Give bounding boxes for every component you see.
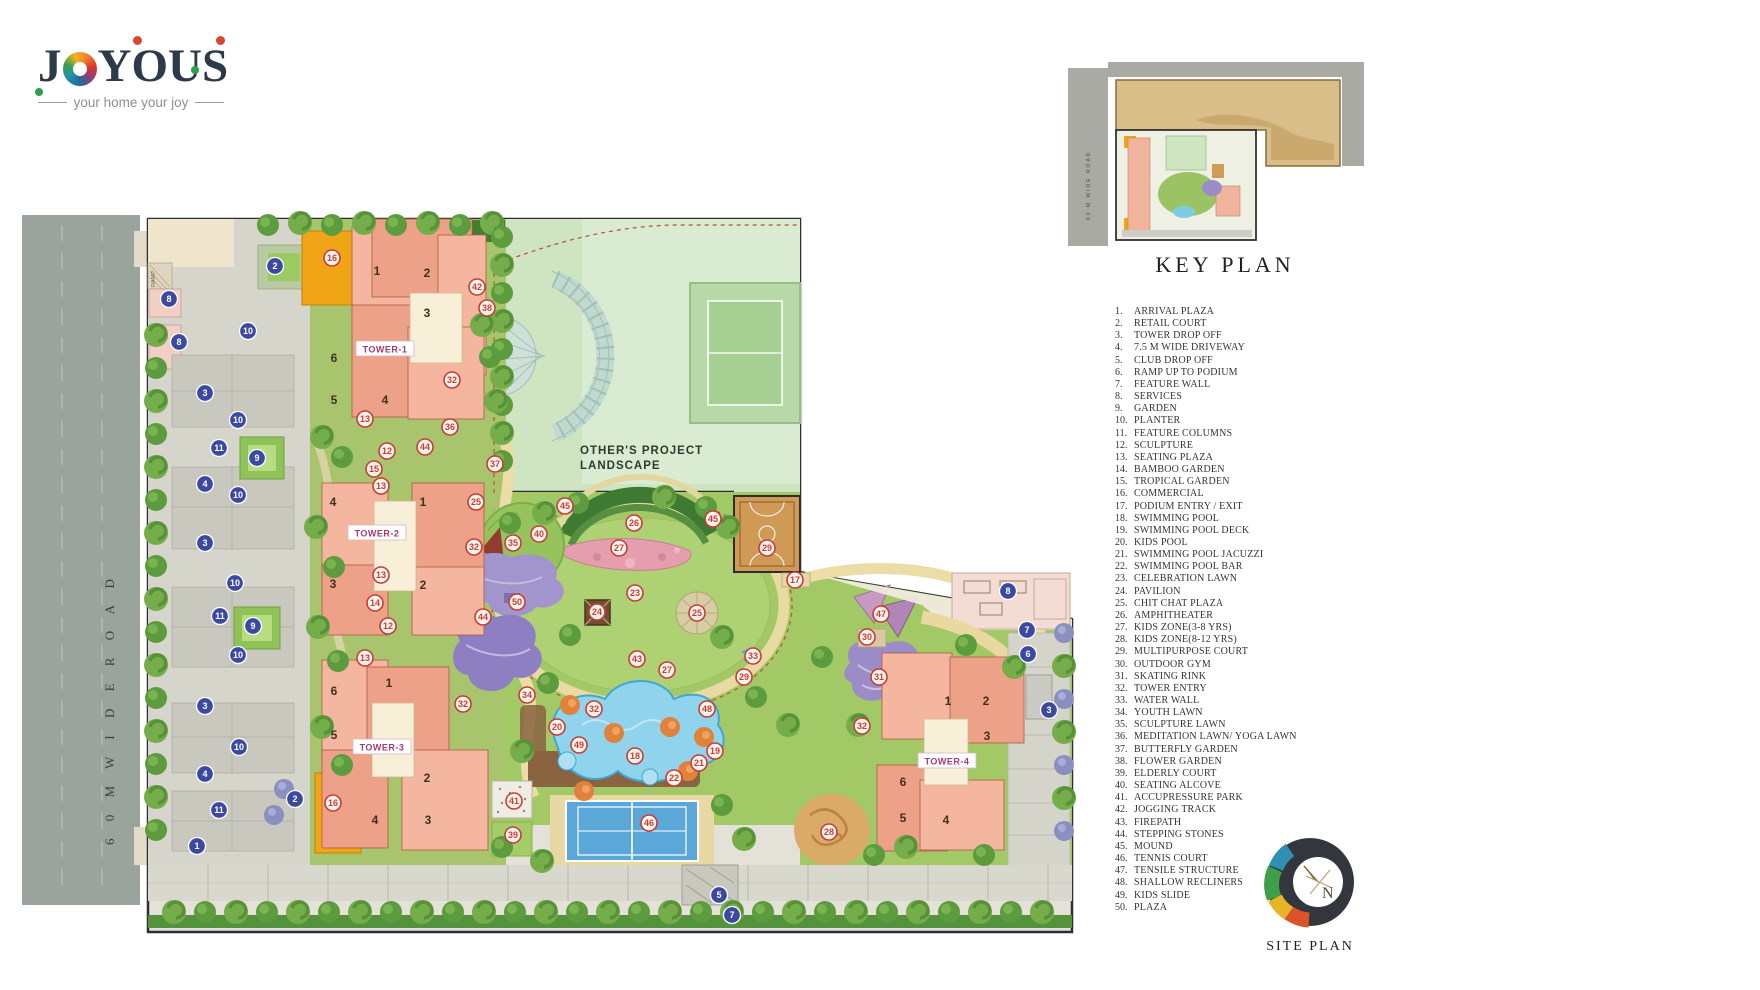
plan-marker-red: 19	[707, 743, 723, 759]
plan-marker-red: 42	[469, 279, 485, 295]
unit-number: 4	[330, 495, 337, 509]
legend-item: 31.SKATING RINK	[1115, 671, 1335, 683]
legend-item: 24.PAVILION	[1115, 586, 1335, 598]
legend-item: 43.FIREPATH	[1115, 817, 1335, 829]
brand-letter-j: J	[38, 40, 62, 92]
plan-marker-red: 32	[444, 372, 460, 388]
svg-text:7: 7	[729, 910, 734, 920]
svg-text:19: 19	[710, 746, 720, 756]
legend-item: 36.MEDITATION LAWN/ YOGA LAWN	[1115, 731, 1335, 743]
svg-text:10: 10	[233, 650, 243, 660]
svg-text:27: 27	[662, 665, 672, 675]
svg-text:11: 11	[214, 805, 224, 815]
plan-marker-red: 32	[466, 539, 482, 555]
plan-marker-blue: 9	[249, 450, 266, 467]
unit-number: 5	[331, 728, 338, 742]
plan-marker-red: 24	[589, 604, 605, 620]
brand-dot-red-1	[133, 36, 142, 45]
plan-marker-blue: 2	[267, 258, 284, 275]
legend-item: 39.ELDERLY COURT	[1115, 768, 1335, 780]
svg-text:45: 45	[560, 501, 570, 511]
legend-item: 38.FLOWER GARDEN	[1115, 756, 1335, 768]
svg-text:5: 5	[716, 890, 721, 900]
svg-text:21: 21	[694, 758, 704, 768]
svg-text:8: 8	[1005, 586, 1010, 596]
others-project-label-1: OTHER'S PROJECT	[580, 445, 703, 457]
legend-item: 34.YOUTH LAWN	[1115, 707, 1335, 719]
plan-marker-red: 29	[736, 669, 752, 685]
plan-marker-red: 29	[759, 540, 775, 556]
plan-marker-blue: 3	[197, 385, 214, 402]
unit-number: 2	[424, 771, 431, 785]
legend-item: 23.CELEBRATION LAWN	[1115, 573, 1335, 585]
plan-marker-blue: 11	[211, 802, 228, 819]
plan-marker-red: 44	[475, 609, 491, 625]
tower-1-footprint	[352, 219, 486, 419]
plan-marker-blue: 4	[197, 476, 214, 493]
svg-text:29: 29	[762, 543, 772, 553]
plan-marker-red: 33	[745, 648, 761, 664]
svg-text:40: 40	[534, 529, 544, 539]
keyplan-road-label: 60 M WIDE ROAD	[1086, 151, 1092, 220]
unit-number: 3	[330, 577, 337, 591]
svg-text:3: 3	[202, 388, 207, 398]
unit-number: 6	[331, 684, 338, 698]
svg-text:29: 29	[739, 672, 749, 682]
plan-marker-red: 27	[659, 662, 675, 678]
plan-marker-blue: 11	[211, 440, 228, 457]
svg-text:42: 42	[472, 282, 482, 292]
driveway-strip: RAMP	[148, 219, 310, 867]
unit-number: 2	[420, 578, 427, 592]
legend-item: 18.SWIMMING POOL	[1115, 513, 1335, 525]
road-60m-label: 6 0 M W I D E R O A D	[102, 572, 117, 845]
svg-text:TOWER-3: TOWER-3	[360, 743, 405, 753]
plan-marker-blue: 6	[1020, 646, 1037, 663]
svg-text:13: 13	[360, 653, 370, 663]
legend-item: 35.SCULPTURE LAWN	[1115, 719, 1335, 731]
site-plan-label: SITE PLAN	[1260, 939, 1360, 955]
plan-marker-red: 16	[325, 795, 341, 811]
svg-text:4: 4	[202, 769, 207, 779]
legend-item: 16.COMMERCIAL	[1115, 488, 1335, 500]
svg-text:TOWER-2: TOWER-2	[355, 529, 400, 539]
unit-number: 4	[943, 813, 950, 827]
svg-text:32: 32	[447, 375, 457, 385]
plan-marker-blue: 3	[1041, 702, 1058, 719]
plan-marker-red: 21	[691, 755, 707, 771]
legend-item: 17.PODIUM ENTRY / EXIT	[1115, 501, 1335, 513]
legend-item: 32.TOWER ENTRY	[1115, 683, 1335, 695]
svg-text:1: 1	[194, 841, 199, 851]
svg-text:32: 32	[469, 542, 479, 552]
legend-item: 15.TROPICAL GARDEN	[1115, 476, 1335, 488]
svg-text:2: 2	[292, 794, 297, 804]
unit-number: 1	[945, 694, 952, 708]
legend-item: 12.SCULPTURE	[1115, 440, 1335, 452]
svg-text:34: 34	[522, 690, 532, 700]
road-60m: 6 0 M W I D E R O A D	[22, 215, 150, 905]
svg-text:43: 43	[632, 654, 642, 664]
plan-marker-blue: 7	[1019, 622, 1036, 639]
svg-text:12: 12	[382, 446, 392, 456]
keyplan-towers-strip	[1128, 138, 1150, 234]
plan-marker-blue: 7	[724, 907, 741, 924]
tower-label: TOWER-3	[353, 739, 411, 754]
commercial-block-top	[302, 231, 358, 305]
svg-text:10: 10	[230, 578, 240, 588]
unit-number: 5	[331, 393, 338, 407]
svg-text:14: 14	[370, 598, 380, 608]
unit-number: 1	[386, 676, 393, 690]
plan-marker-blue: 11	[212, 608, 229, 625]
plan-marker-red: 22	[666, 770, 682, 786]
unit-number: 4	[372, 813, 379, 827]
svg-text:8: 8	[166, 294, 171, 304]
tower-label: TOWER-2	[348, 525, 406, 540]
unit-number: 3	[424, 306, 431, 320]
compass-n-letter: N	[1322, 885, 1334, 902]
brand-logo: JYOUS your home your joy	[38, 40, 238, 110]
plan-marker-blue: 3	[197, 698, 214, 715]
svg-text:20: 20	[552, 722, 562, 732]
plan-marker-red: 32	[854, 718, 870, 734]
svg-text:8: 8	[176, 337, 181, 347]
svg-text:11: 11	[214, 443, 224, 453]
unit-number: 5	[900, 811, 907, 825]
legend-item: 20.KIDS POOL	[1115, 537, 1335, 549]
svg-text:12: 12	[383, 621, 393, 631]
plan-marker-blue: 8	[1000, 583, 1017, 600]
legend-item: 8.SERVICES	[1115, 391, 1335, 403]
plan-marker-red: 13	[357, 411, 373, 427]
svg-text:3: 3	[202, 701, 207, 711]
svg-text:32: 32	[458, 699, 468, 709]
legend-item: 30.OUTDOOR GYM	[1115, 659, 1335, 671]
svg-text:41: 41	[509, 796, 519, 806]
plan-marker-red: 44	[417, 439, 433, 455]
legend-item: 7.FEATURE WALL	[1115, 379, 1335, 391]
plan-marker-red: 25	[689, 605, 705, 621]
plan-marker-blue: 3	[197, 535, 214, 552]
plan-marker-blue: 5	[711, 887, 728, 904]
keyplan-court	[1212, 164, 1224, 178]
brand-tagline-row: your home your joy	[38, 95, 224, 110]
plan-marker-red: 13	[373, 478, 389, 494]
plan-marker-red: 15	[366, 461, 382, 477]
plan-marker-blue: 9	[245, 618, 262, 635]
svg-text:25: 25	[692, 608, 702, 618]
plan-marker-blue: 2	[287, 791, 304, 808]
tree-border-bottom	[162, 900, 1054, 924]
unit-number: 1	[420, 495, 427, 509]
legend-item: 29.MULTIPURPOSE COURT	[1115, 646, 1335, 658]
svg-text:26: 26	[629, 518, 639, 528]
svg-text:2: 2	[272, 261, 277, 271]
svg-text:48: 48	[702, 704, 712, 714]
svg-text:10: 10	[234, 742, 244, 752]
svg-text:16: 16	[328, 798, 338, 808]
plan-marker-red: 26	[626, 515, 642, 531]
brand-letters-rest: YOUS	[98, 40, 229, 92]
key-plan-map: 60 M WIDE ROAD	[1066, 60, 1368, 250]
plan-marker-red: 12	[379, 443, 395, 459]
svg-text:49: 49	[574, 740, 584, 750]
tagline-dash-right	[195, 102, 224, 103]
svg-text:18: 18	[630, 751, 640, 761]
svg-text:13: 13	[360, 414, 370, 424]
svg-text:44: 44	[420, 442, 430, 452]
svg-text:13: 13	[376, 570, 386, 580]
keyplan-promenade	[1122, 230, 1252, 237]
plan-marker-blue: 10	[230, 412, 247, 429]
plan-marker-red: 18	[627, 748, 643, 764]
brand-dot-red-2	[216, 36, 225, 45]
unit-number: 6	[331, 351, 338, 365]
plan-marker-blue: 8	[161, 291, 178, 308]
others-project-landscape: OTHER'S PROJECT LANDSCAPE	[494, 219, 800, 492]
plan-marker-blue: 4	[197, 766, 214, 783]
swirl-orange	[1289, 913, 1309, 920]
svg-text:32: 32	[589, 704, 599, 714]
legend-item: 41.ACCUPRESSURE PARK	[1115, 792, 1335, 804]
svg-text:32: 32	[857, 721, 867, 731]
keyplan-rink	[1202, 180, 1222, 196]
plan-marker-blue: 8	[171, 334, 188, 351]
plan-marker-red: 48	[699, 701, 715, 717]
keyplan-road-right	[1342, 62, 1364, 166]
plan-marker-red: 39	[505, 827, 521, 843]
plan-marker-red: 38	[479, 300, 495, 316]
unit-number: 3	[984, 729, 991, 743]
legend-item: 26.AMPHITHEATER	[1115, 610, 1335, 622]
unit-number: 3	[425, 813, 432, 827]
svg-text:31: 31	[874, 672, 884, 682]
legend-item: 37.BUTTERFLY GARDEN	[1115, 744, 1335, 756]
keyplan-pool	[1173, 206, 1195, 218]
svg-text:10: 10	[233, 415, 243, 425]
svg-text:44: 44	[478, 612, 488, 622]
legend-item: 6.RAMP UP TO PODIUM	[1115, 367, 1335, 379]
svg-text:15: 15	[369, 464, 379, 474]
legend-item: 19.SWIMMING POOL DECK	[1115, 525, 1335, 537]
unit-number: 4	[382, 393, 389, 407]
unit-number: 2	[424, 266, 431, 280]
plan-marker-red: 25	[468, 494, 484, 510]
brand-dot-green-2	[191, 66, 199, 74]
svg-text:4: 4	[202, 479, 207, 489]
svg-text:36: 36	[445, 422, 455, 432]
legend-item: 21.SWIMMING POOL JACUZZI	[1115, 549, 1335, 561]
compass-logo-icon: N	[1262, 836, 1358, 932]
unit-number: 6	[900, 775, 907, 789]
svg-text:38: 38	[482, 303, 492, 313]
svg-text:10: 10	[243, 326, 253, 336]
plan-marker-blue: 10	[231, 739, 248, 756]
svg-text:30: 30	[862, 632, 872, 642]
legend-item: 27.KIDS ZONE(3-8 YRS)	[1115, 622, 1335, 634]
plan-marker-blue: 1	[189, 838, 206, 855]
svg-text:23: 23	[630, 588, 640, 598]
legend-item: 13.SEATING PLAZA	[1115, 452, 1335, 464]
legend-item: 42.JOGGING TRACK	[1115, 804, 1335, 816]
site-plan-logo: N SITE PLAN	[1260, 836, 1360, 955]
plan-marker-red: 50	[509, 594, 525, 610]
plan-marker-red: 28	[821, 824, 837, 840]
plan-marker-red: 46	[641, 815, 657, 831]
multipurpose-court	[734, 496, 800, 572]
plan-marker-red: 13	[373, 567, 389, 583]
svg-text:45: 45	[708, 514, 718, 524]
svg-text:3: 3	[202, 538, 207, 548]
legend-list: 1.ARRIVAL PLAZA2.RETAIL COURT3.TOWER DRO…	[1115, 306, 1335, 914]
tower-label: TOWER-4	[918, 753, 976, 768]
ramp-label: RAMP	[151, 271, 157, 287]
svg-text:3: 3	[1046, 705, 1051, 715]
plan-marker-red: 45	[557, 498, 573, 514]
plan-marker-red: 14	[367, 595, 383, 611]
plan-marker-red: 31	[871, 669, 887, 685]
plan-marker-red: 41	[506, 793, 522, 809]
plan-marker-red: 32	[455, 696, 471, 712]
plan-marker-blue: 10	[240, 323, 257, 340]
brand-wordmark: JYOUS	[38, 40, 238, 92]
page: { "brand": { "wordmark_j": "J", "wordmar…	[0, 0, 1760, 990]
svg-text:24: 24	[592, 607, 602, 617]
plan-marker-blue: 10	[227, 575, 244, 592]
svg-text:6: 6	[1025, 649, 1030, 659]
brand-tagline: your home your joy	[74, 95, 189, 110]
svg-text:7: 7	[1024, 625, 1029, 635]
svg-text:13: 13	[376, 481, 386, 491]
plan-marker-red: 35	[505, 535, 521, 551]
svg-text:27: 27	[614, 543, 624, 553]
site-plan: 6 0 M W I D E R O A D OTHER'S PROJECT LA…	[22, 205, 1082, 940]
svg-text:TOWER-4: TOWER-4	[925, 757, 970, 767]
plan-marker-blue: 10	[230, 487, 247, 504]
svg-text:11: 11	[215, 611, 225, 621]
legend-item: 9.GARDEN	[1115, 403, 1335, 415]
svg-text:46: 46	[644, 818, 654, 828]
plan-marker-red: 13	[357, 650, 373, 666]
legend-item: 2.RETAIL COURT	[1115, 318, 1335, 330]
unit-number: 1	[374, 264, 381, 278]
plan-marker-red: 37	[487, 456, 503, 472]
svg-text:47: 47	[876, 609, 886, 619]
keyplan-others-lawn	[1166, 136, 1206, 170]
legend-item: 33.WATER WALL	[1115, 695, 1335, 707]
plan-marker-red: 49	[571, 737, 587, 753]
svg-text:50: 50	[512, 597, 522, 607]
plan-marker-red: 34	[519, 687, 535, 703]
plan-marker-blue: 10	[230, 647, 247, 664]
svg-text:22: 22	[669, 773, 679, 783]
plan-marker-red: 20	[549, 719, 565, 735]
legend-item: 11.FEATURE COLUMNS	[1115, 428, 1335, 440]
svg-text:10: 10	[233, 490, 243, 500]
others-project-label-2: LANDSCAPE	[580, 460, 661, 472]
plan-marker-red: 30	[859, 629, 875, 645]
plan-marker-red: 40	[531, 526, 547, 542]
svg-text:33: 33	[748, 651, 758, 661]
legend-item: 4.7.5 M WIDE DRIVEWAY	[1115, 342, 1335, 354]
svg-text:37: 37	[490, 459, 500, 469]
svg-text:39: 39	[508, 830, 518, 840]
plan-marker-red: 12	[380, 618, 396, 634]
plan-marker-red: 23	[627, 585, 643, 601]
plan-marker-red: 45	[705, 511, 721, 527]
plan-marker-red: 17	[787, 572, 803, 588]
legend-item: 1.ARRIVAL PLAZA	[1115, 306, 1335, 318]
legend-item: 22.SWIMMING POOL BAR	[1115, 561, 1335, 573]
svg-text:28: 28	[824, 827, 834, 837]
tagline-dash-left	[38, 102, 67, 103]
legend-item: 28.KIDS ZONE(8-12 YRS)	[1115, 634, 1335, 646]
svg-text:9: 9	[254, 453, 259, 463]
svg-text:9: 9	[250, 621, 255, 631]
key-plan-title: KEY PLAN	[1095, 252, 1355, 278]
brand-dot-green-1	[35, 88, 43, 96]
keyplan-road-top	[1108, 62, 1342, 77]
legend-item: 3.TOWER DROP OFF	[1115, 330, 1335, 342]
svg-text:17: 17	[790, 575, 800, 585]
legend-item: 25.CHIT CHAT PLAZA	[1115, 598, 1335, 610]
plan-marker-red: 16	[324, 250, 340, 266]
svg-text:16: 16	[327, 253, 337, 263]
svg-text:25: 25	[471, 497, 481, 507]
plan-marker-red: 43	[629, 651, 645, 667]
plan-marker-red: 32	[586, 701, 602, 717]
tower-label: TOWER-1	[356, 341, 414, 356]
plan-marker-red: 36	[442, 419, 458, 435]
unit-number: 2	[983, 694, 990, 708]
swirl-green	[1272, 869, 1275, 898]
brand-swirl-o-icon	[63, 52, 97, 86]
svg-text:35: 35	[508, 538, 518, 548]
legend-item: 5.CLUB DROP OFF	[1115, 355, 1335, 367]
svg-text:TOWER-1: TOWER-1	[363, 345, 408, 355]
plan-marker-red: 47	[873, 606, 889, 622]
plan-marker-red: 27	[611, 540, 627, 556]
legend-item: 40.SEATING ALCOVE	[1115, 780, 1335, 792]
legend-item: 10.PLANTER	[1115, 415, 1335, 427]
legend-item: 14.BAMBOO GARDEN	[1115, 464, 1335, 476]
